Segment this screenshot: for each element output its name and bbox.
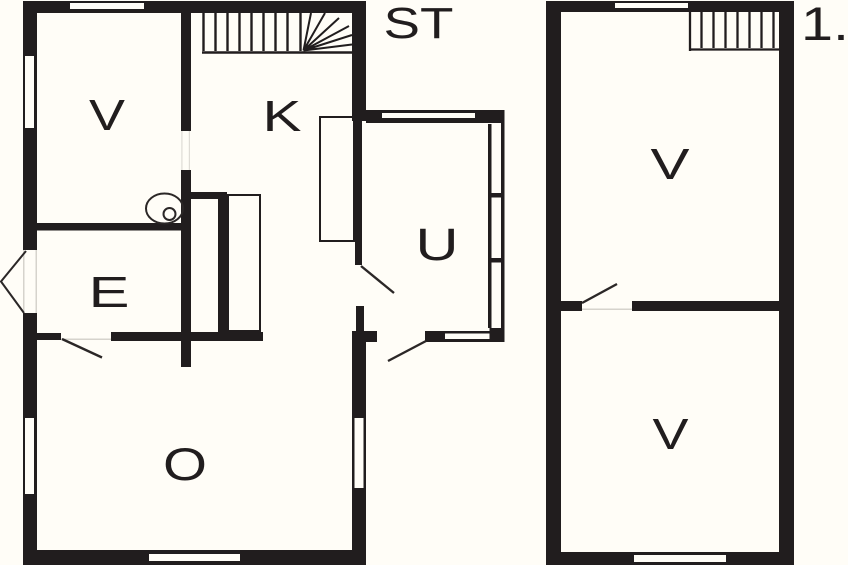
- svg-text:ST: ST: [384, 0, 454, 48]
- svg-text:V: V: [651, 140, 691, 189]
- svg-text:K: K: [263, 92, 302, 141]
- svg-text:V: V: [653, 410, 690, 459]
- svg-text:1.: 1.: [801, 0, 848, 50]
- svg-text:O: O: [163, 439, 207, 490]
- svg-text:V: V: [89, 91, 126, 140]
- svg-text:U: U: [416, 219, 459, 270]
- svg-text:E: E: [89, 268, 130, 317]
